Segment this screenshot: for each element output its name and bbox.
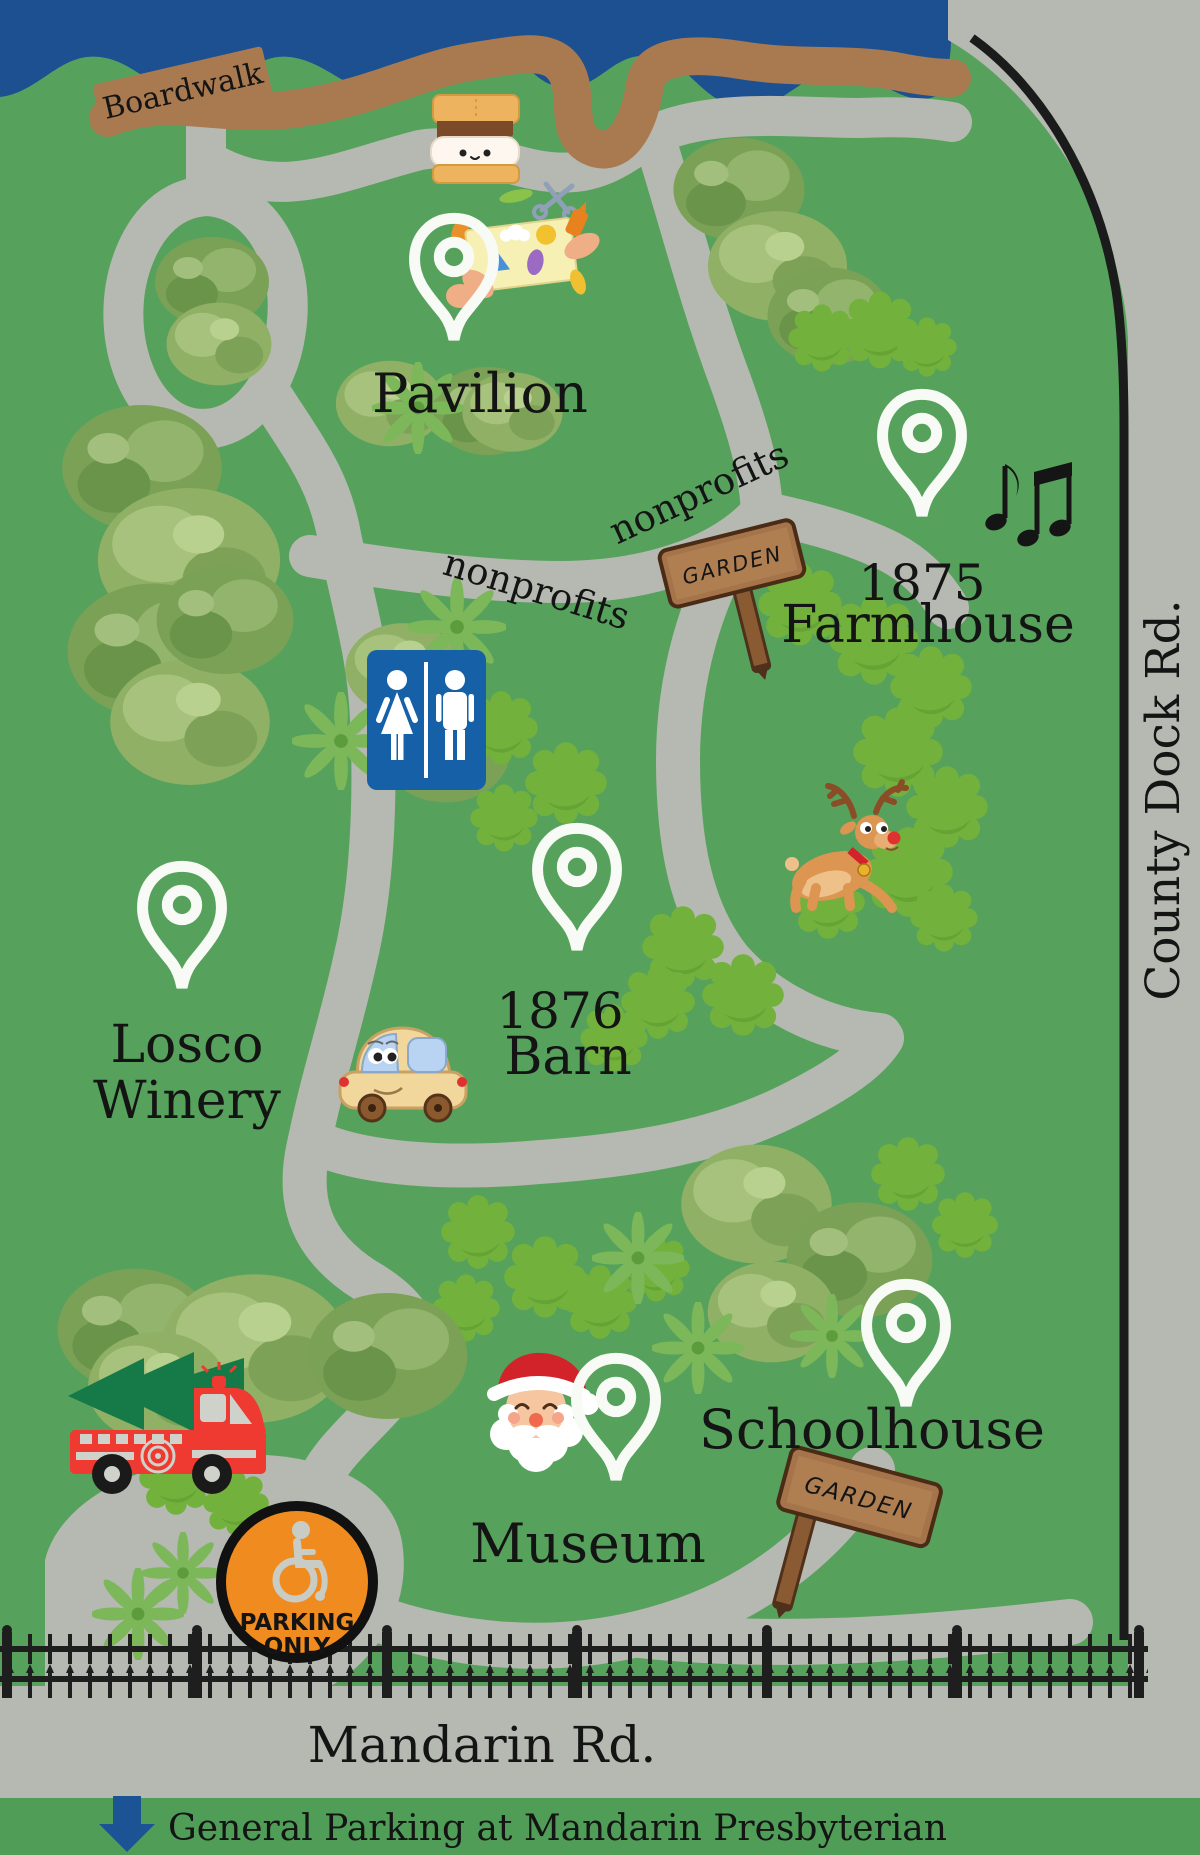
schoolhouse-label: Schoolhouse xyxy=(699,1398,1045,1461)
pavilion-label: Pavilion xyxy=(372,362,588,425)
park-map: Boardwalk xyxy=(0,0,1200,1855)
parking-badge-line2: ONLY xyxy=(264,1634,331,1660)
museum-label: Museum xyxy=(470,1512,706,1575)
winery-label-line1: Losco xyxy=(111,1015,264,1075)
parking-badge-line1: PARKING xyxy=(240,1610,355,1636)
restroom-icon xyxy=(367,650,486,790)
county-dock-road-label: County Dock Rd. xyxy=(1136,599,1191,1000)
mandarin-road-label: Mandarin Rd. xyxy=(308,1716,657,1774)
farmhouse-name-label: Farmhouse xyxy=(781,595,1074,655)
smore-icon xyxy=(431,95,519,183)
footer-label: General Parking at Mandarin Presbyterian xyxy=(168,1808,947,1849)
accessible-parking-badge: PARKING ONLY xyxy=(221,1506,373,1660)
winery-label-line2: Winery xyxy=(93,1071,281,1131)
barn-name-label: Barn xyxy=(504,1027,632,1087)
fence xyxy=(0,1625,1148,1698)
